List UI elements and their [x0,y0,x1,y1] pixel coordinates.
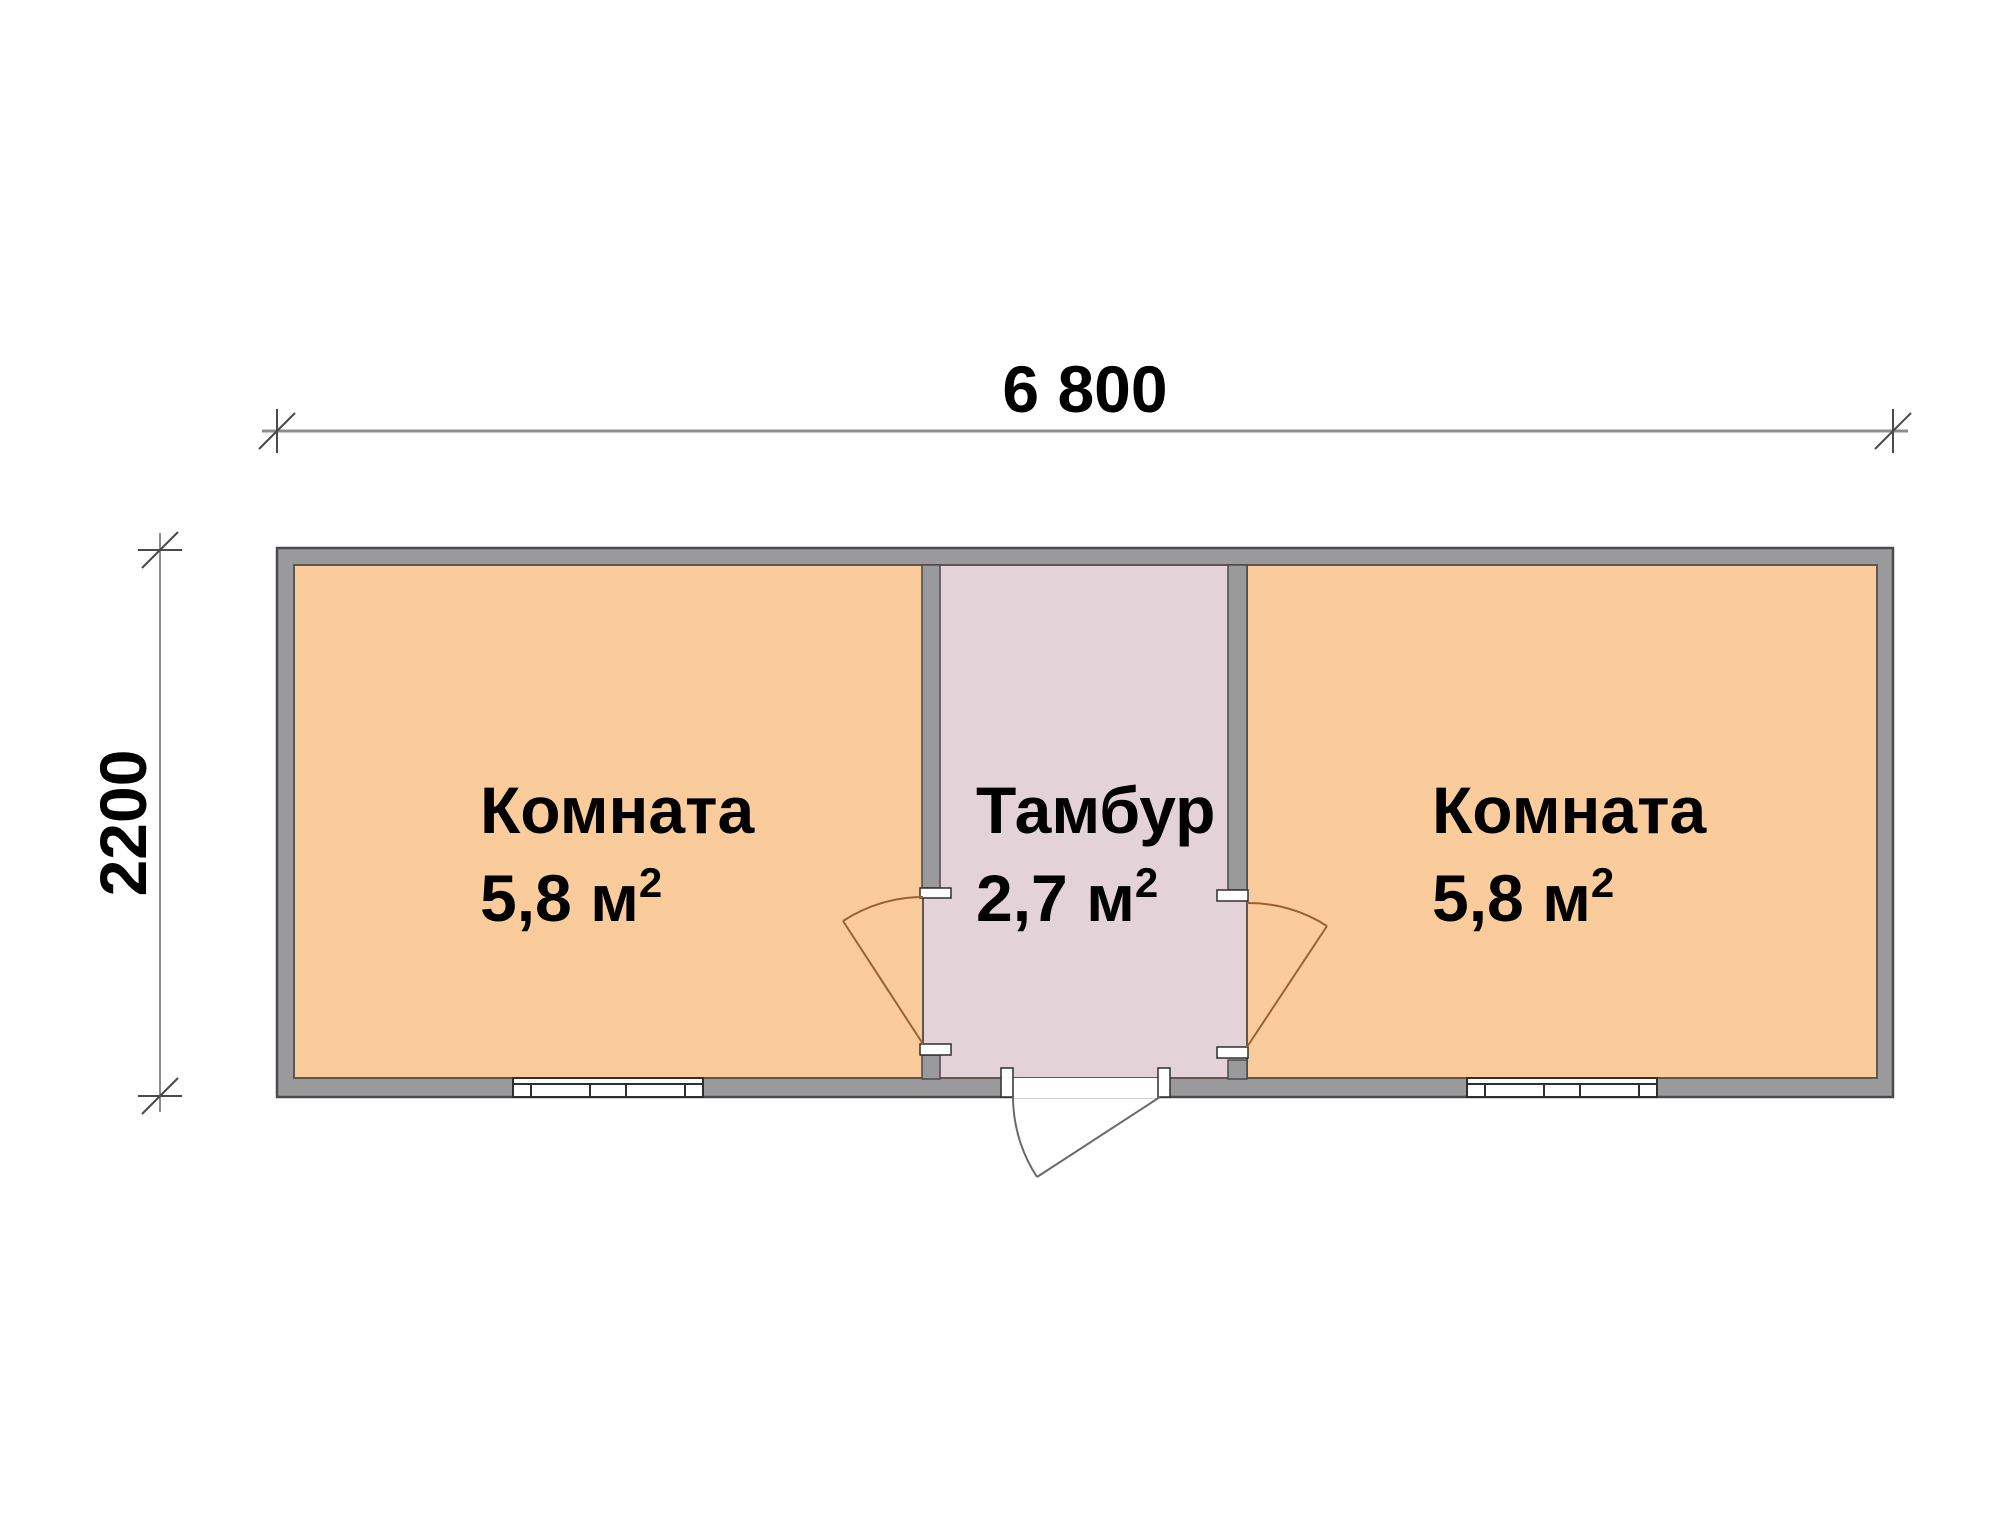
jamb-left-door-top [920,888,951,898]
room-tambur-area: 2,7 м2 [976,854,1215,942]
dimension-depth-label: 2200 [90,750,156,897]
room-right-label: Комната 5,8 м2 [1432,766,1706,942]
room-left-name: Комната [480,766,754,854]
dimension-depth-value: 2200 [86,750,160,897]
room-left-label: Комната 5,8 м2 [480,766,754,942]
jamb-right-door-bottom [1217,1047,1248,1058]
floor-plan-page: 6 800 2200 Комната 5,8 м2 Тамбур 2,7 м2 … [0,0,2000,1539]
dimension-width-label: 6 800 [277,356,1893,422]
jamb-left-door-bottom [920,1044,951,1055]
jamb-entrance-right [1158,1068,1170,1097]
entrance-opening [1013,1078,1158,1098]
room-left-area: 5,8 м2 [480,854,754,942]
door-entrance-leaf [1037,1097,1160,1177]
room-tambur-name: Тамбур [976,766,1215,854]
window-left [513,1078,703,1097]
door-entrance [1013,1097,1160,1177]
room-right-area: 5,8 м2 [1432,854,1706,942]
jamb-entrance-left [1001,1068,1013,1097]
door-entrance-arc [1013,1097,1037,1177]
room-right-name: Комната [1432,766,1706,854]
jamb-right-door-top [1217,890,1248,901]
dimension-width-value: 6 800 [1002,352,1167,426]
room-tambur-label: Тамбур 2,7 м2 [976,766,1215,942]
window-right [1467,1078,1657,1097]
